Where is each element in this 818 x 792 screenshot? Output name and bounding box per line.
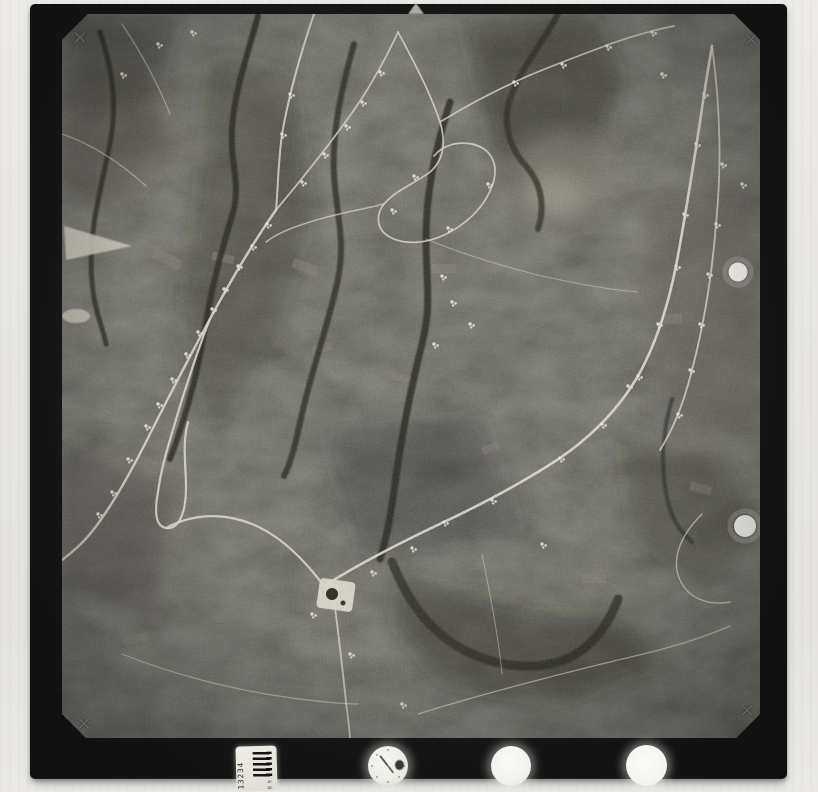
aerial-photo-canvas [62,14,760,738]
barcode-small-text: B 9 [267,780,273,790]
fiducial-cross-icon: × [743,31,758,49]
blank-dial-icon [626,745,667,786]
fiducial-cross-icon: × [72,29,87,47]
clock-hand [387,765,394,773]
aerial-photo [62,14,760,738]
barcode-number: 13234 [235,749,245,789]
clock-dial-icon [368,746,408,786]
film-frame: 13234 B 9 [30,4,787,779]
frame-index-triangle-icon [408,3,424,14]
fiducial-cross-icon: × [739,702,754,720]
clock-dark-mark [395,760,404,770]
blank-dial-icon [491,746,531,786]
barcode-label: 13234 B 9 [235,745,277,791]
fiducial-cross-icon: × [76,715,91,733]
barcode-bars-icon [253,752,273,779]
scanner-background: 13234 B 9 × × × × [0,0,818,790]
